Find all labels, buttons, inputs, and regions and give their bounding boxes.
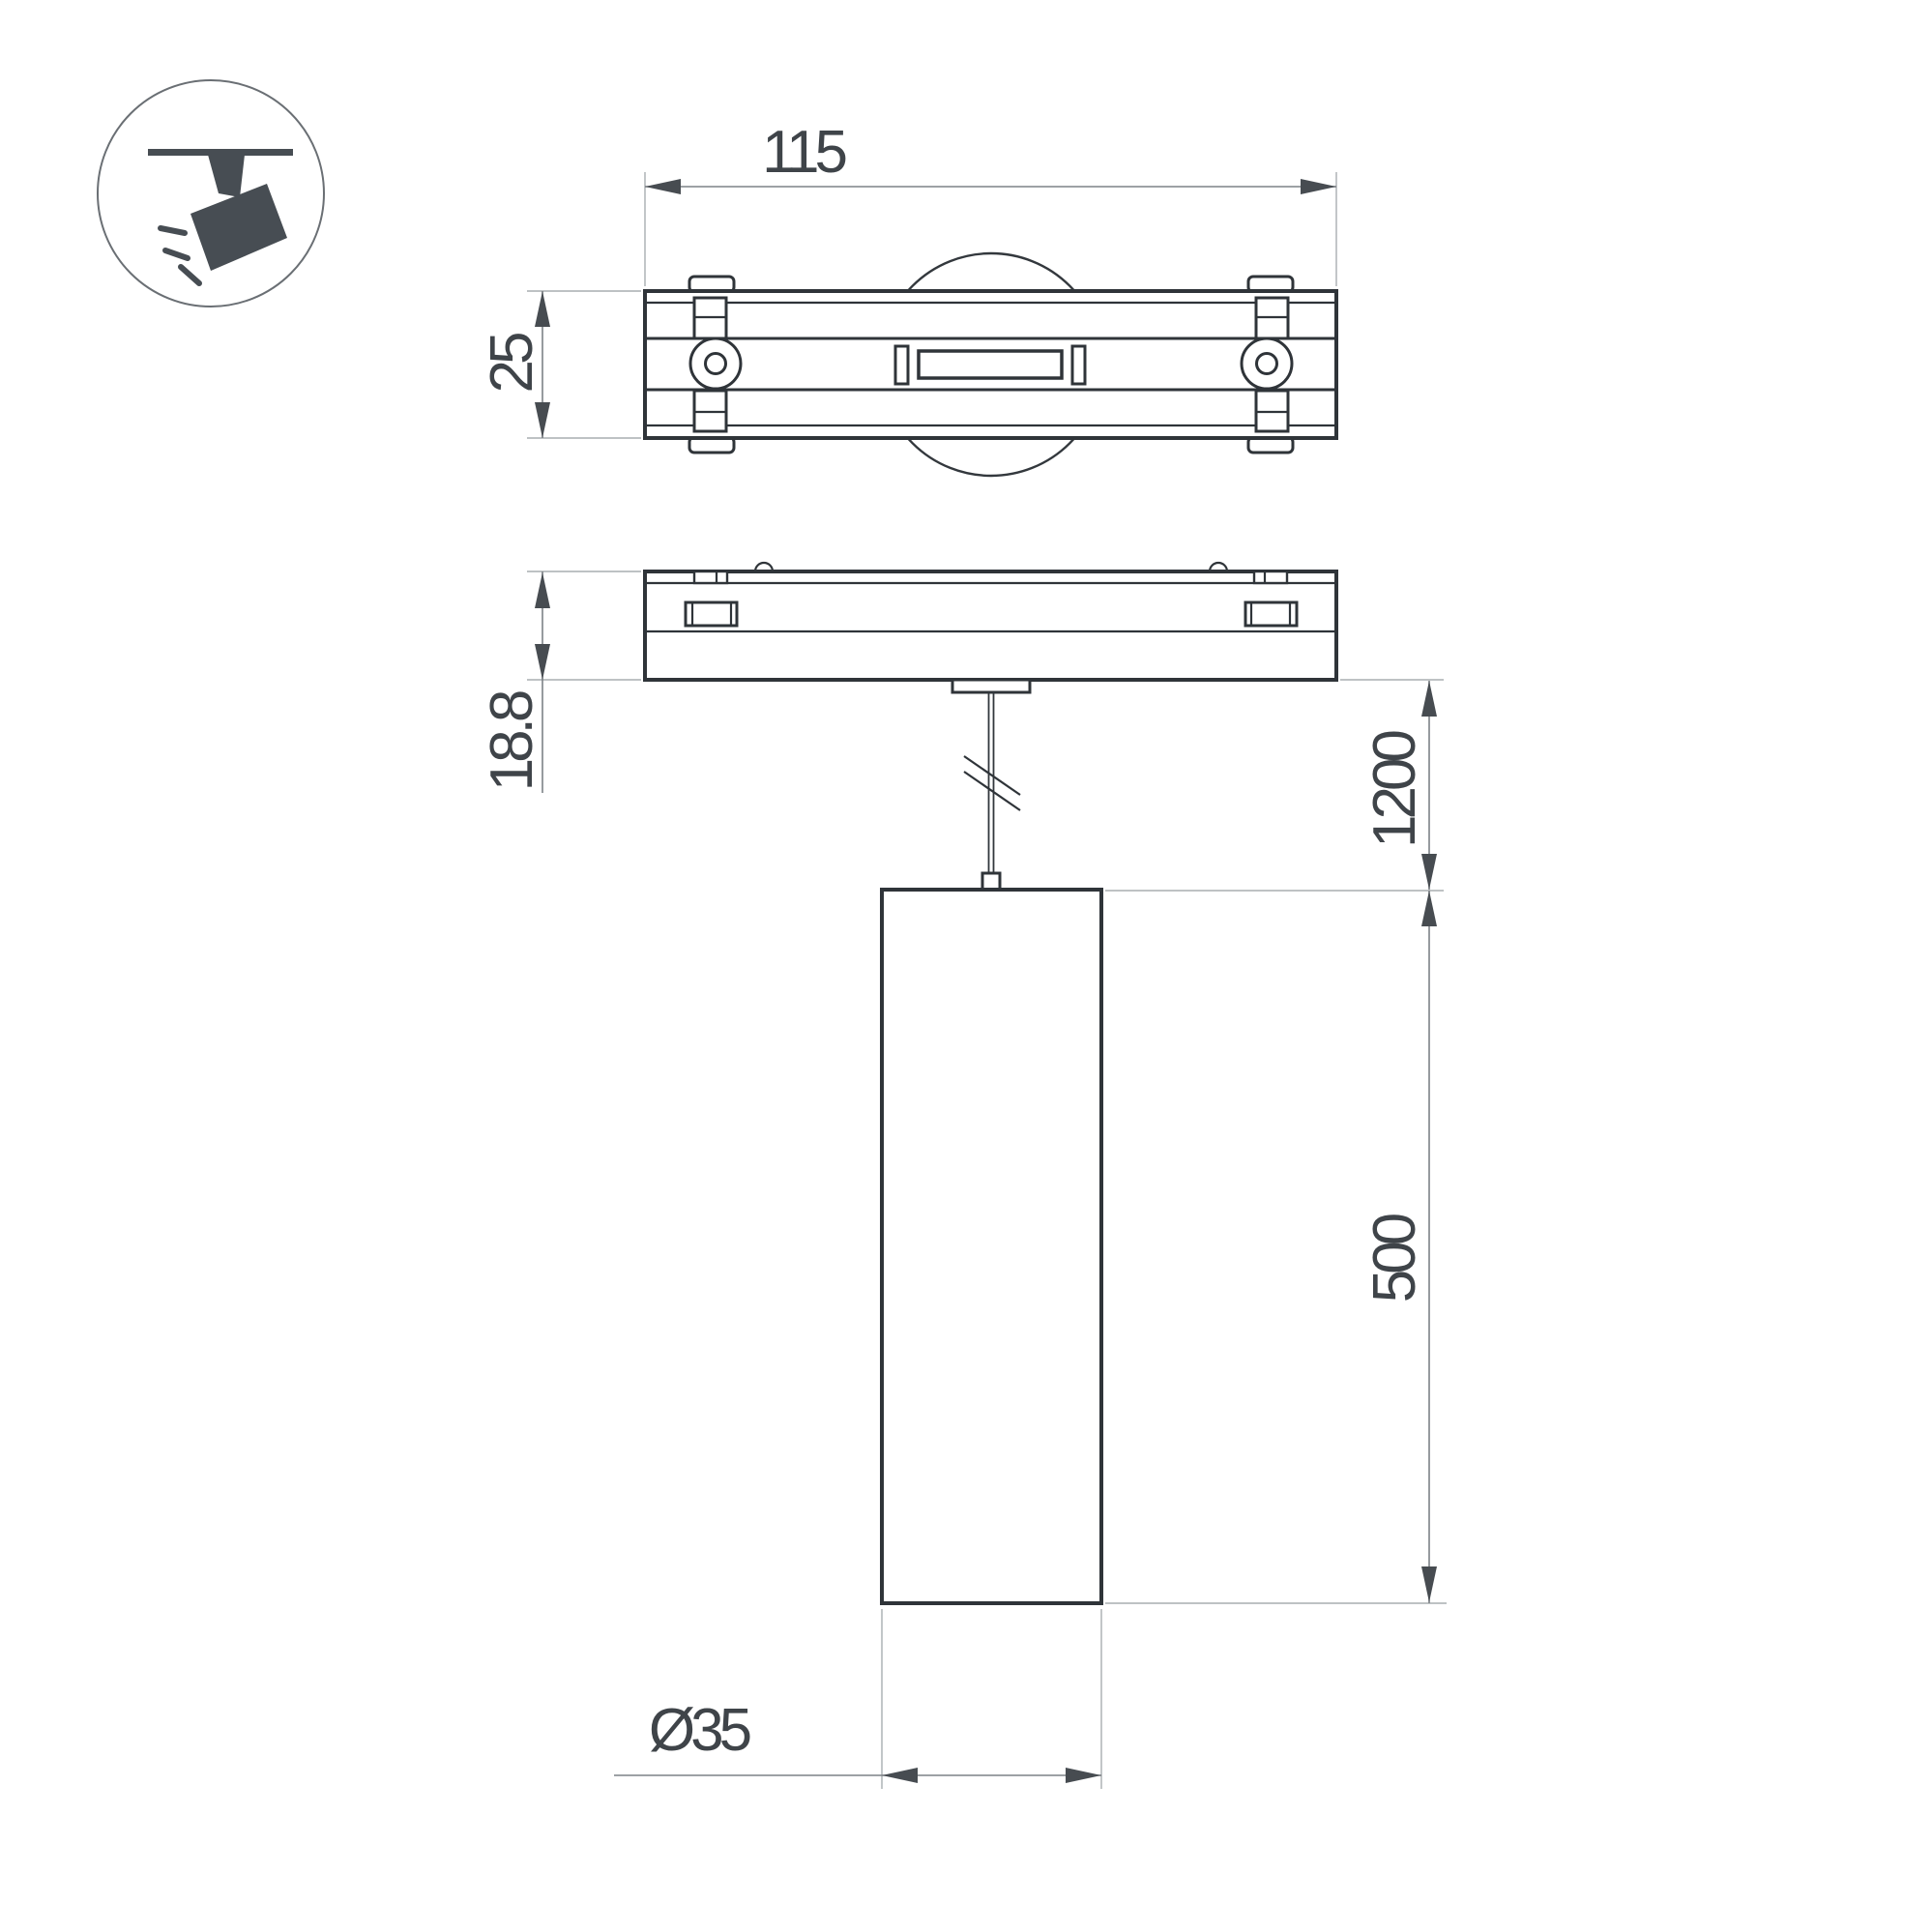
latch (686, 602, 737, 626)
icon-light-ray (181, 267, 199, 283)
dim-label-track-depth: 25 (479, 334, 545, 393)
slot-side-contact (895, 346, 908, 384)
arrowhead (535, 402, 550, 438)
dimension-lamp-length: 500 (1105, 891, 1447, 1603)
dim-label-lamp-diameter: Ø35 (649, 1697, 750, 1764)
track-spotlight-icon (98, 80, 324, 307)
icon-stem (208, 155, 245, 197)
icon-lamp-body (190, 184, 287, 271)
break-mark (964, 756, 1020, 795)
corner-clip (1256, 298, 1288, 338)
icon-circle (98, 80, 324, 307)
arrowhead (535, 291, 550, 327)
hanger-plate (952, 680, 1030, 692)
dim-label-lamp-length: 500 (1361, 1214, 1428, 1303)
strip-clip (1254, 571, 1287, 583)
dimension-lamp-diameter: Ø35 (614, 1609, 1101, 1789)
dim-label-track-height: 18.8 (479, 691, 545, 791)
arrowhead (1421, 681, 1437, 717)
corner-clip (694, 298, 726, 338)
technical-drawing: 115 25 (0, 0, 1932, 1932)
arrowhead (882, 1768, 918, 1783)
arrowhead (1421, 1566, 1437, 1602)
pendant-cylinder (882, 890, 1101, 1603)
slot-side-contact (1072, 346, 1085, 384)
slot-window (919, 351, 1062, 378)
arrowhead (1421, 854, 1437, 890)
arrowhead (1301, 179, 1336, 194)
dimension-suspension-length: 1200 (1105, 680, 1444, 891)
arrowhead (535, 572, 550, 608)
side-view (645, 563, 1336, 692)
top-view (645, 253, 1336, 476)
strip-clip (694, 571, 727, 583)
icon-light-ray (161, 228, 185, 233)
corner-clip (1256, 391, 1288, 431)
break-mark (964, 772, 1020, 810)
corner-clip (694, 391, 726, 431)
icon-light-ray (165, 250, 188, 258)
arrowhead (1421, 891, 1437, 926)
arrowhead (535, 644, 550, 680)
track-adapter-body-side (645, 571, 1336, 680)
icon-track-bar (148, 149, 293, 156)
dimension-track-height: 18.8 (479, 571, 641, 793)
dimension-track-depth: 25 (479, 291, 641, 438)
arrowhead (645, 179, 681, 194)
lamp-body (882, 890, 1101, 1603)
drawing-canvas: 115 25 (0, 0, 1932, 1932)
arrowhead (1066, 1768, 1101, 1783)
dimension-track-width: 115 (645, 119, 1336, 286)
dim-label-suspension-length: 1200 (1361, 731, 1428, 848)
suspension-cable (964, 692, 1020, 890)
dim-label-track-width: 115 (762, 119, 845, 186)
latch (1245, 602, 1297, 626)
cable-connector (982, 873, 1000, 890)
